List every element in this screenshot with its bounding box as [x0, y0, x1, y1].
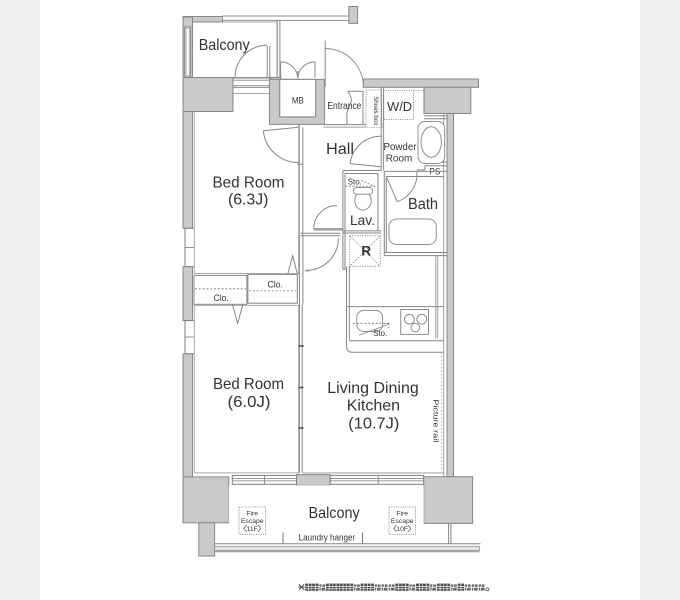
svg-text:Sto.: Sto.	[373, 329, 387, 338]
svg-text:(10.7J): (10.7J)	[348, 415, 399, 432]
svg-text:Sto.: Sto.	[348, 178, 362, 187]
svg-text:11F: 11F	[247, 526, 258, 533]
svg-text:Bath: Bath	[408, 196, 438, 213]
svg-text:R: R	[361, 243, 371, 258]
svg-text:Fire: Fire	[246, 511, 258, 518]
svg-text:10F: 10F	[396, 526, 408, 533]
svg-text:W/D: W/D	[387, 100, 412, 114]
svg-text:Escape: Escape	[241, 518, 264, 525]
svg-text:Entrance: Entrance	[327, 101, 361, 112]
svg-text:Fire: Fire	[396, 511, 408, 518]
svg-text:Balcony: Balcony	[309, 505, 360, 522]
svg-text:Escape: Escape	[391, 518, 414, 525]
svg-text:Laundry hanger: Laundry hanger	[299, 533, 356, 543]
svg-text:MB: MB	[292, 96, 304, 106]
svg-text:Clo.: Clo.	[213, 293, 229, 303]
svg-text:Living Dining: Living Dining	[327, 380, 418, 397]
svg-text:(6.3J): (6.3J)	[228, 192, 269, 209]
svg-text:Balcony: Balcony	[199, 37, 250, 54]
svg-text:Bed Room: Bed Room	[213, 376, 284, 393]
svg-text:Hall: Hall	[326, 141, 354, 158]
svg-text:(6.0J): (6.0J)	[228, 394, 271, 411]
svg-text:Powder: Powder	[384, 142, 418, 153]
svg-text:Lav.: Lav.	[350, 212, 375, 228]
svg-text:Shoes box: Shoes box	[372, 96, 379, 126]
svg-text:Kitchen: Kitchen	[347, 397, 400, 414]
svg-text:Clo.: Clo.	[267, 280, 283, 290]
svg-text:Picture rail: Picture rail	[431, 399, 440, 442]
svg-text:Bed Room: Bed Room	[213, 175, 285, 192]
svg-text:Room: Room	[386, 154, 413, 165]
